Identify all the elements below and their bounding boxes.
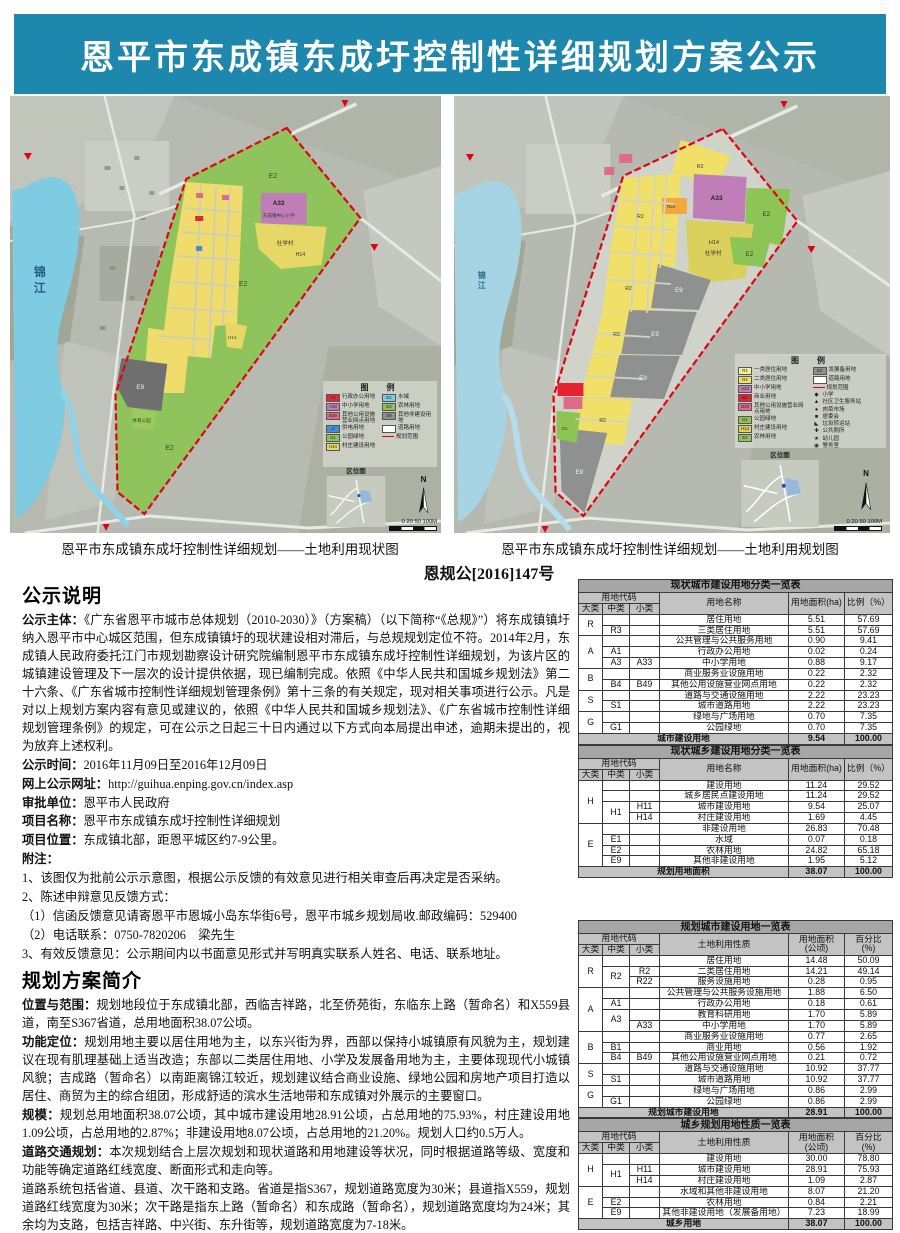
paragraph: 功能定位：规划用地主要以居住用地为主，以东兴街为界，西部以保持小城镇原有风貌为主… bbox=[22, 1034, 570, 1106]
table-cell: H1 bbox=[603, 1164, 630, 1186]
table-cell: 城市道路用地 bbox=[660, 701, 789, 712]
legend-color-swatch: E2 bbox=[382, 403, 396, 411]
legend-item: A33中小学用地 bbox=[738, 385, 809, 393]
column-header: 用地面积(ha) bbox=[788, 593, 844, 615]
legend-item: R1一类居住用地 bbox=[738, 367, 809, 375]
footer-label: 规划城市建设用地 bbox=[579, 1107, 789, 1118]
column-header: 比例（%） bbox=[844, 593, 892, 615]
table-cell: H bbox=[579, 1154, 603, 1187]
table-cell: 0.22 bbox=[788, 679, 844, 690]
table-cell: 道路与交通设施用地 bbox=[660, 690, 789, 701]
table-cell: 29.52 bbox=[844, 780, 892, 791]
legend-item: ◉警务室 bbox=[813, 443, 884, 449]
map-label: E2 bbox=[239, 281, 248, 288]
legend-color-swatch: G1 bbox=[326, 434, 340, 442]
table-cell: E2 bbox=[603, 1197, 630, 1208]
table-cell: 9.54 bbox=[788, 802, 844, 813]
footer-area: 38.07 bbox=[788, 867, 844, 878]
table-cell bbox=[603, 1064, 630, 1075]
table-cell: 21.20 bbox=[844, 1186, 892, 1197]
legend-label: 发展备用地 bbox=[829, 367, 857, 373]
legend-item: A33中小学用地 bbox=[326, 403, 378, 411]
legend-item: G1公园绿地 bbox=[738, 416, 809, 424]
paragraph: 公示主体：《广东省恩平市城市总体规划（2010-2030）》（方案稿）（以下简称… bbox=[22, 612, 570, 756]
table-cell bbox=[630, 955, 660, 966]
table-cell: 26.83 bbox=[788, 823, 844, 834]
table-cell: G1 bbox=[603, 1096, 630, 1107]
legend-item: ◣垃圾转运站 bbox=[813, 421, 884, 427]
legend-item: ◆小学 bbox=[813, 392, 884, 398]
table-cell: 9.41 bbox=[844, 636, 892, 647]
table-cell: 0.22 bbox=[788, 668, 844, 679]
current-urban-land-table: 现状城市建设用地分类一览表用地代码用地名称用地面积(ha)比例（%）大类中类小类… bbox=[578, 579, 893, 745]
legend-color-swatch: E2 bbox=[738, 434, 752, 442]
table-cell: H14 bbox=[630, 1175, 660, 1186]
river-label: 江 bbox=[478, 280, 486, 290]
table-cell: 居住用地 bbox=[660, 614, 789, 625]
table-cell: 水域和其他非建设用地 bbox=[660, 1186, 789, 1197]
table-cell: G bbox=[579, 1085, 603, 1107]
river-label: 锦 bbox=[34, 264, 46, 279]
table-cell: 6.50 bbox=[844, 988, 892, 999]
table-cell: 中小学用地 bbox=[660, 658, 789, 669]
footer-pct: 100.00 bbox=[844, 1219, 892, 1230]
table-cell bbox=[630, 834, 660, 845]
table-cell bbox=[630, 1031, 660, 1042]
table-cell: 绿地与广场用地 bbox=[660, 712, 789, 723]
table-cell: 行政办公用地 bbox=[660, 999, 789, 1010]
legend-color-swatch: H14 bbox=[738, 425, 752, 433]
table-cell: 2.22 bbox=[788, 690, 844, 701]
table-cell: 绿地与广场用地 bbox=[660, 1085, 789, 1096]
table-cell: 城市建设用地 bbox=[660, 1164, 789, 1175]
map-label: R2 bbox=[637, 214, 644, 220]
legend-label: 道路用地 bbox=[398, 425, 420, 431]
table-cell bbox=[603, 988, 630, 999]
table-cell: 2.65 bbox=[844, 1031, 892, 1042]
table-cell: 0.07 bbox=[788, 834, 844, 845]
table-cell: A bbox=[579, 636, 603, 669]
table-cell bbox=[603, 668, 630, 679]
table-cell: G bbox=[579, 712, 603, 734]
table-cell: 二类居住用地 bbox=[660, 966, 789, 977]
map-label: E9 bbox=[651, 331, 659, 338]
map-legend: 图 例 A1行政办公用地A33中小学用地B49其他公用设施营业网点用地U供电用地… bbox=[323, 381, 437, 467]
map-label: R2 bbox=[599, 418, 606, 424]
map-label: R2 bbox=[697, 164, 704, 170]
legend-label: 垃圾转运站 bbox=[823, 421, 851, 427]
column-header: 中类 bbox=[603, 603, 630, 614]
map-label: R2 bbox=[625, 286, 632, 292]
table-cell: 65.18 bbox=[844, 845, 892, 856]
footer-pct: 100.00 bbox=[844, 733, 892, 744]
table-cell: 28.91 bbox=[788, 1164, 844, 1175]
table-cell: E2 bbox=[603, 845, 630, 856]
table-cell: 5.51 bbox=[788, 625, 844, 636]
legend-symbol-icon: ◉ bbox=[813, 443, 821, 449]
table-cell: 11.24 bbox=[788, 780, 844, 791]
table-cell: H1 bbox=[603, 802, 630, 824]
table-cell: 教育科研用地 bbox=[660, 1010, 789, 1021]
table-cell: 1.95 bbox=[788, 856, 844, 867]
table-cell bbox=[630, 1075, 660, 1086]
legend-label: 农林用地 bbox=[398, 403, 420, 409]
legend-item: E1水域 bbox=[382, 394, 434, 402]
legend-column: A1行政办公用地A33中小学用地B49其他公用设施营业网点用地U供电用地G1公园… bbox=[326, 393, 378, 453]
section-heading: 规划方案简介 bbox=[22, 966, 570, 993]
table-cell bbox=[630, 1010, 660, 1021]
table-cell: 中小学用地 bbox=[660, 1020, 789, 1031]
paragraph: 审批单位：恩平市人民政府 bbox=[22, 795, 570, 813]
table-cell: 2.87 bbox=[844, 1175, 892, 1186]
table-cell: 公园绿地 bbox=[660, 1096, 789, 1107]
column-header: 中类 bbox=[603, 1143, 630, 1154]
map-label: E9 bbox=[675, 287, 683, 294]
paragraph: 规模：规划总用地面积38.07公顷，其中城市建设用地28.91公顷，占总用地的7… bbox=[22, 1107, 570, 1143]
table-cell: R2 bbox=[630, 966, 660, 977]
legend-symbol-icon: ✚ bbox=[813, 428, 821, 434]
sections: 公示说明公示主体：《广东省恩平市城市总体规划（2010-2030）》（方案稿）（… bbox=[22, 579, 570, 1233]
table-cell bbox=[630, 614, 660, 625]
table-cell: 37.77 bbox=[844, 1064, 892, 1075]
table-cell: 0.02 bbox=[788, 647, 844, 658]
table-cell: 30.00 bbox=[788, 1154, 844, 1165]
table-cell: 0.70 bbox=[788, 712, 844, 723]
table-cell bbox=[603, 636, 630, 647]
table-cell: 其他非建设用地（发展备用地） bbox=[660, 1208, 789, 1219]
map-label: H14 bbox=[296, 252, 306, 258]
table-cell: 农林用地 bbox=[660, 1197, 789, 1208]
legend-label: 村庄建设用地 bbox=[754, 425, 787, 431]
current-urban-rural-land-table: 现状城乡建设用地分类一览表用地代码用地名称用地面积(ha)比例（%）大类中类小类… bbox=[578, 745, 893, 878]
table-cell: 非建设用地 bbox=[660, 823, 789, 834]
table-cell bbox=[630, 647, 660, 658]
table-cell: 其他公用设施营业网点用地 bbox=[660, 679, 789, 690]
legend-item: A1行政办公用地 bbox=[326, 394, 378, 402]
column-header: 用地代码 bbox=[579, 1132, 660, 1143]
table-cell bbox=[630, 625, 660, 636]
column-header: 土地利用性质 bbox=[660, 934, 789, 956]
table-cell: 78.80 bbox=[844, 1154, 892, 1165]
table-cell bbox=[630, 636, 660, 647]
legend-label: 公园绿地 bbox=[342, 434, 364, 440]
table-cell: H14 bbox=[630, 813, 660, 824]
paragraph: 项目名称：恩平市东成镇东成圩控制性详细规划 bbox=[22, 813, 570, 831]
table-cell: 其他公用设施营业网点用地 bbox=[660, 1053, 789, 1064]
table-cell: 0.86 bbox=[788, 1085, 844, 1096]
inset-title: 区位图 bbox=[741, 452, 819, 460]
column-header: 用地名称 bbox=[660, 593, 789, 615]
table-cell: 49.14 bbox=[844, 966, 892, 977]
legend-title: 图 例 bbox=[738, 356, 883, 366]
table-cell: 0.88 bbox=[788, 658, 844, 669]
legend-column: E9发展备用地道路用地规划范围◆小学▲社区卫生服务站●肉菜市场■居委会◣垃圾转运… bbox=[813, 366, 884, 451]
legend-item: R2二类居住用地 bbox=[738, 376, 809, 384]
table-cell bbox=[630, 780, 660, 791]
footer-label: 城乡用地 bbox=[579, 1219, 789, 1230]
table-cell bbox=[603, 614, 630, 625]
table-cell: E bbox=[579, 1186, 603, 1219]
table-cell: R bbox=[579, 614, 603, 636]
legend-label: 道路用地 bbox=[829, 376, 851, 382]
map-label: E2 bbox=[763, 211, 771, 218]
inset-title: 区位图 bbox=[325, 468, 387, 476]
table-cell: 37.77 bbox=[844, 1075, 892, 1086]
scale-label: 0 20 50 100M bbox=[847, 519, 882, 525]
table-cell: 2.21 bbox=[844, 1197, 892, 1208]
legend-symbol-icon: ◣ bbox=[813, 421, 821, 427]
table-cell: 1.09 bbox=[788, 1175, 844, 1186]
legend-label: 中小学用地 bbox=[754, 385, 782, 391]
table-cell: 2.99 bbox=[844, 1085, 892, 1096]
legend-label: 居委会 bbox=[823, 414, 840, 420]
table-cell: 其他非建设用地 bbox=[660, 856, 789, 867]
table-cell: 4.45 bbox=[844, 813, 892, 824]
legend-item: 道路用地 bbox=[813, 376, 884, 384]
legend-label: 小学 bbox=[823, 392, 834, 398]
north-arrow-icon bbox=[416, 485, 431, 517]
map-label: A33 bbox=[273, 200, 285, 207]
footer-area: 9.54 bbox=[788, 733, 844, 744]
column-header: 用地名称 bbox=[660, 758, 789, 780]
legend-label: 其他公用设施营业网点用地 bbox=[754, 403, 809, 416]
table-cell: 9.17 bbox=[844, 658, 892, 669]
paragraph: 位置与范围：规划地段位于东成镇北部，西临吉祥路，北至侨苑街，东临东上路（暂命名）… bbox=[22, 997, 570, 1033]
table-cell bbox=[603, 1085, 630, 1096]
column-header: 大类 bbox=[579, 944, 603, 955]
table-cell: 城乡居民点建设用地 bbox=[660, 791, 789, 802]
map-label: 东成镇中心小学 bbox=[263, 212, 295, 219]
legend-color-swatch: E9 bbox=[382, 412, 396, 420]
paragraph: 2、陈述申辩意见反馈方式： bbox=[22, 889, 570, 907]
table-cell: 2.32 bbox=[844, 668, 892, 679]
north-label: N bbox=[863, 469, 869, 478]
river-label: 江 bbox=[34, 280, 46, 295]
table-cell: G1 bbox=[603, 723, 630, 734]
north-arrow-icon bbox=[858, 479, 874, 515]
table-cell: 29.52 bbox=[844, 791, 892, 802]
table-cell: 0.77 bbox=[788, 1031, 844, 1042]
legend-item: E2农林用地 bbox=[382, 403, 434, 411]
map-label: R22 bbox=[667, 204, 676, 209]
table-cell: 18.99 bbox=[844, 1208, 892, 1219]
legend-item: 道路用地 bbox=[382, 425, 434, 433]
column-header: 用地面积 (公顷) bbox=[788, 934, 844, 956]
table-cell: 0.95 bbox=[844, 977, 892, 988]
table-cell: 0.18 bbox=[844, 834, 892, 845]
column-header: 比例（%） bbox=[844, 758, 892, 780]
column-header: 用地面积(ha) bbox=[788, 758, 844, 780]
table-cell: H11 bbox=[630, 802, 660, 813]
table-cell bbox=[603, 1186, 630, 1197]
table-cell: E bbox=[579, 823, 603, 866]
table-cell: B1 bbox=[603, 1042, 630, 1053]
table-cell bbox=[630, 712, 660, 723]
legend-symbol-icon: ◆ bbox=[813, 392, 821, 398]
legend-label: 规划范围 bbox=[827, 385, 849, 391]
map-legend: 图 例 R1一类居住用地R2二类居住用地A33中小学用地B1商业用地B49其他公… bbox=[735, 354, 886, 448]
legend-label: 商业用地 bbox=[754, 394, 776, 400]
legend-label: 公共厕所 bbox=[823, 428, 845, 434]
map-label: 体育公园 bbox=[132, 417, 151, 424]
north-label: N bbox=[421, 475, 427, 484]
table-cell: 7.35 bbox=[844, 723, 892, 734]
table-cell bbox=[630, 791, 660, 802]
table-cell: 57.69 bbox=[844, 625, 892, 636]
table-cell: 5.89 bbox=[844, 1010, 892, 1021]
table-cell: A bbox=[579, 988, 603, 1031]
table-cell: B4 bbox=[603, 1053, 630, 1064]
table-cell: S1 bbox=[603, 1075, 630, 1086]
table-cell: 商业服务业设施用地 bbox=[660, 668, 789, 679]
legend-label: 肉菜市场 bbox=[823, 407, 845, 413]
legend-color-swatch: R1 bbox=[738, 367, 752, 375]
column-header: 用地代码 bbox=[579, 934, 660, 945]
paragraph: （2）电话联系：0750-7820206 梁先生 bbox=[22, 927, 570, 945]
notice-page: 恩平市东成镇东成圩控制性详细规划方案公示 bbox=[0, 0, 900, 1233]
table-cell: 0.21 bbox=[788, 1053, 844, 1064]
footer-area: 28.91 bbox=[788, 1107, 844, 1118]
table-cell: 道路与交通设施用地 bbox=[660, 1064, 789, 1075]
legend-label: 规划范围 bbox=[396, 434, 418, 440]
legend-color-swatch bbox=[382, 425, 396, 433]
legend-item: E9发展备用地 bbox=[813, 367, 884, 375]
table-cell: 1.69 bbox=[788, 813, 844, 824]
legend-item: ✚公共厕所 bbox=[813, 428, 884, 434]
table-cell: 5.51 bbox=[788, 614, 844, 625]
legend-title: 图 例 bbox=[326, 383, 434, 393]
footer-pct: 100.00 bbox=[844, 867, 892, 878]
legend-item: B49其他公用设施营业网点用地 bbox=[326, 412, 378, 425]
legend-label: 农林用地 bbox=[754, 434, 776, 440]
legend-color-swatch: R2 bbox=[738, 376, 752, 384]
column-header: 百分比 (%) bbox=[844, 1132, 892, 1154]
scale-bar: 0 20 50 100M bbox=[834, 519, 882, 531]
table-cell bbox=[603, 1154, 630, 1165]
table-cell: 8.07 bbox=[788, 1186, 844, 1197]
table-cell: 10.92 bbox=[788, 1064, 844, 1075]
legend-label: 供电用地 bbox=[342, 425, 364, 431]
table-cell bbox=[603, 690, 630, 701]
legend-item: ■居委会 bbox=[813, 414, 884, 420]
table-cell bbox=[603, 1031, 630, 1042]
table-cell bbox=[630, 1197, 660, 1208]
north-arrow: N bbox=[416, 475, 431, 517]
table-cell bbox=[630, 723, 660, 734]
legend-symbol-icon: ■ bbox=[813, 414, 821, 420]
table-cell: B bbox=[579, 668, 603, 690]
legend-symbol-icon: ● bbox=[813, 407, 821, 413]
table-cell: A3 bbox=[603, 1010, 630, 1032]
table-cell: 57.69 bbox=[844, 614, 892, 625]
table-cell: A33 bbox=[630, 658, 660, 669]
table-cell bbox=[630, 1154, 660, 1165]
table-cell: R22 bbox=[630, 977, 660, 988]
maps-row: 锦 江 E2 E2 E2 A33 东成镇中心小学 社学村 H14 H14 E9 … bbox=[10, 96, 890, 533]
table-cell: 商业用地 bbox=[660, 1042, 789, 1053]
paragraph: 3、有效反馈意见：公示期间内以书面意见形式并写明真实联系人姓名、电话、联系地址。 bbox=[22, 946, 570, 964]
table-cell bbox=[603, 712, 630, 723]
table-cell bbox=[630, 823, 660, 834]
location-inset: 区位图 bbox=[741, 452, 819, 528]
table-cell: A33 bbox=[630, 1020, 660, 1031]
legend-color-swatch: A33 bbox=[326, 403, 340, 411]
table-cell: 城市道路用地 bbox=[660, 1075, 789, 1086]
location-inset: 区位图 bbox=[325, 468, 387, 528]
table-cell: 2.32 bbox=[844, 679, 892, 690]
scale-bar-graphic bbox=[389, 526, 437, 531]
table-cell: 三类居住用地 bbox=[660, 625, 789, 636]
legend-label: 二类居住用地 bbox=[754, 376, 787, 382]
table-title: 现状城乡建设用地分类一览表 bbox=[579, 745, 893, 758]
table-cell bbox=[630, 1064, 660, 1075]
legend-color-swatch: A33 bbox=[738, 385, 752, 393]
legend-item: H14村庄建设用地 bbox=[738, 425, 809, 433]
table-cell bbox=[630, 856, 660, 867]
paragraph: 道路交通规划：本次规划结合上层次规划和现状道路和用地建设等状况，同时根据道路等级… bbox=[22, 1144, 570, 1180]
table-cell: 0.18 bbox=[788, 999, 844, 1010]
legend-color-swatch: U bbox=[326, 425, 340, 433]
table-cell: R3 bbox=[603, 625, 630, 636]
paragraph: 1、该图仅为批前公示示意图，根据公示反馈的有效意见进行相关审查后再决定是否采纳。 bbox=[22, 870, 570, 888]
section-heading: 公示说明 bbox=[22, 581, 570, 608]
table-cell: E1 bbox=[603, 834, 630, 845]
table-cell: 商业服务业设施用地 bbox=[660, 1031, 789, 1042]
table-cell: S bbox=[579, 1064, 603, 1086]
table-cell: 1.70 bbox=[788, 1020, 844, 1031]
legend-color-swatch: H14 bbox=[326, 443, 340, 451]
table-cell bbox=[630, 1096, 660, 1107]
table-cell: 0.24 bbox=[844, 647, 892, 658]
legend-color-swatch: A1 bbox=[326, 394, 340, 402]
column-header: 小类 bbox=[630, 1143, 660, 1154]
column-header: 中类 bbox=[603, 944, 630, 955]
legend-line-swatch bbox=[382, 436, 394, 437]
column-header: 大类 bbox=[579, 769, 603, 780]
map-label: E2 bbox=[269, 173, 278, 180]
table-cell: 建设用地 bbox=[660, 780, 789, 791]
table-cell bbox=[630, 1186, 660, 1197]
map-label: R2 bbox=[613, 332, 620, 338]
footer-label: 城市建设用地 bbox=[579, 733, 789, 744]
legend-item: 规划范围 bbox=[813, 385, 884, 391]
table-title: 规划城市建设用地一览表 bbox=[579, 921, 893, 934]
table-cell bbox=[603, 780, 630, 791]
column-header: 中类 bbox=[603, 769, 630, 780]
legend-color-swatch: B49 bbox=[738, 403, 752, 411]
planned-urban-land-table: 规划城市建设用地一览表用地代码土地利用性质用地面积 (公顷)百分比 (%)大类中… bbox=[578, 920, 893, 1118]
table-cell: 14.48 bbox=[788, 955, 844, 966]
map-label: E2 bbox=[165, 445, 174, 452]
table-cell bbox=[630, 1042, 660, 1053]
scale-bar: 0 20 50 100M bbox=[389, 519, 437, 531]
planned-land-use-map-svg: 锦 江 A33 R22 R2 R2 R2 R2 R2 H14 社学村 E2 E2… bbox=[454, 96, 890, 533]
north-arrow: N bbox=[858, 469, 874, 515]
table-cell bbox=[603, 823, 630, 834]
legend-label: 其他非建设用地 bbox=[398, 412, 434, 425]
table-cell: B49 bbox=[630, 679, 660, 690]
legend-symbol-icon: ★ bbox=[813, 436, 821, 442]
table-cell: 公共管理与公共服务设施用地 bbox=[660, 988, 789, 999]
page-header: 恩平市东成镇东成圩控制性详细规划方案公示 bbox=[14, 14, 886, 94]
table-cell bbox=[603, 791, 630, 802]
location-inset-map bbox=[325, 476, 387, 527]
tables-column: 现状城市建设用地分类一览表用地代码用地名称用地面积(ha)比例（%）大类中类小类… bbox=[578, 579, 893, 1233]
urban-rural-planned-land-table: 城乡规划用地性质一览表用地代码土地利用性质用地面积 (公顷)百分比 (%)大类中… bbox=[578, 1118, 893, 1230]
footer-label: 规划用地面积 bbox=[579, 867, 789, 878]
table-cell: 50.09 bbox=[844, 955, 892, 966]
map-label: 社学村 bbox=[277, 239, 294, 247]
